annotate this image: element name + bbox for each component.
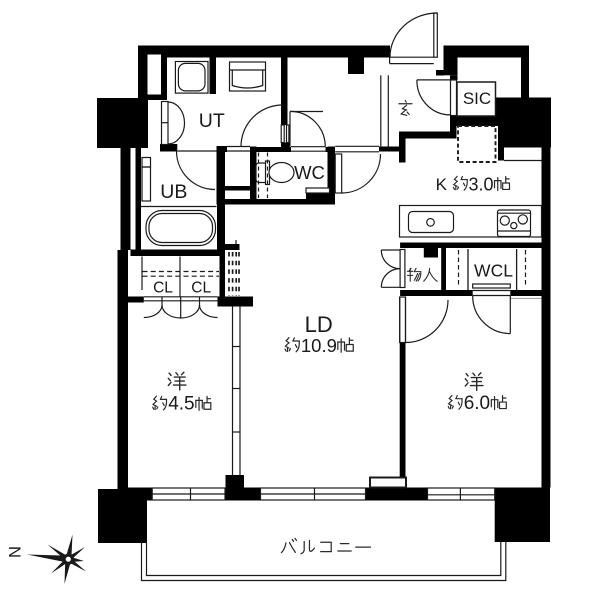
svg-text:CL: CL — [153, 280, 173, 297]
svg-text:3.0: 3.0 — [468, 175, 493, 195]
svg-text:4.5: 4.5 — [168, 394, 194, 415]
svg-text:UT: UT — [199, 110, 225, 132]
svg-text:CL: CL — [191, 280, 211, 297]
svg-text:WC: WC — [294, 162, 325, 183]
svg-text:SIC: SIC — [463, 89, 491, 108]
svg-text:UB: UB — [160, 181, 187, 203]
svg-text:WCL: WCL — [474, 261, 513, 281]
svg-text:K: K — [436, 175, 448, 194]
svg-text:6.0: 6.0 — [464, 393, 490, 414]
svg-text:10.9: 10.9 — [301, 335, 337, 356]
svg-text:LD: LD — [305, 312, 333, 337]
svg-text:N: N — [7, 546, 25, 558]
